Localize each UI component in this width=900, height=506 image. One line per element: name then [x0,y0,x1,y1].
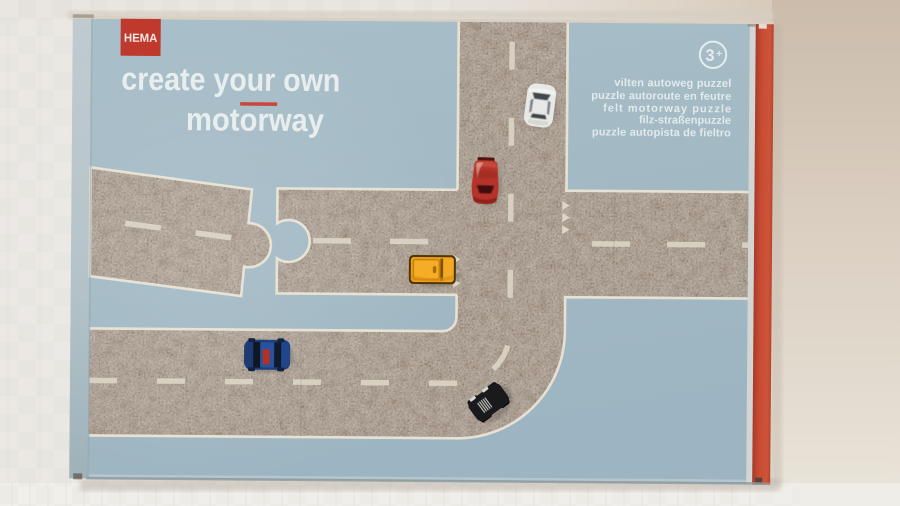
svg-text:motorway: motorway [186,101,324,138]
svg-text:vilten autoweg puzzel: vilten autoweg puzzel [614,77,731,90]
svg-text:3: 3 [705,47,714,65]
svg-text:filz-straßenpuzzle: filz-straßenpuzzle [639,114,731,127]
svg-text:puzzle autoroute en feutre: puzzle autoroute en feutre [591,90,731,103]
svg-text:create your own: create your own [121,61,340,99]
svg-text:puzzle autopista de fieltro: puzzle autopista de fieltro [592,126,731,139]
svg-text:HEMA: HEMA [124,31,158,45]
svg-text:+: + [716,48,722,60]
